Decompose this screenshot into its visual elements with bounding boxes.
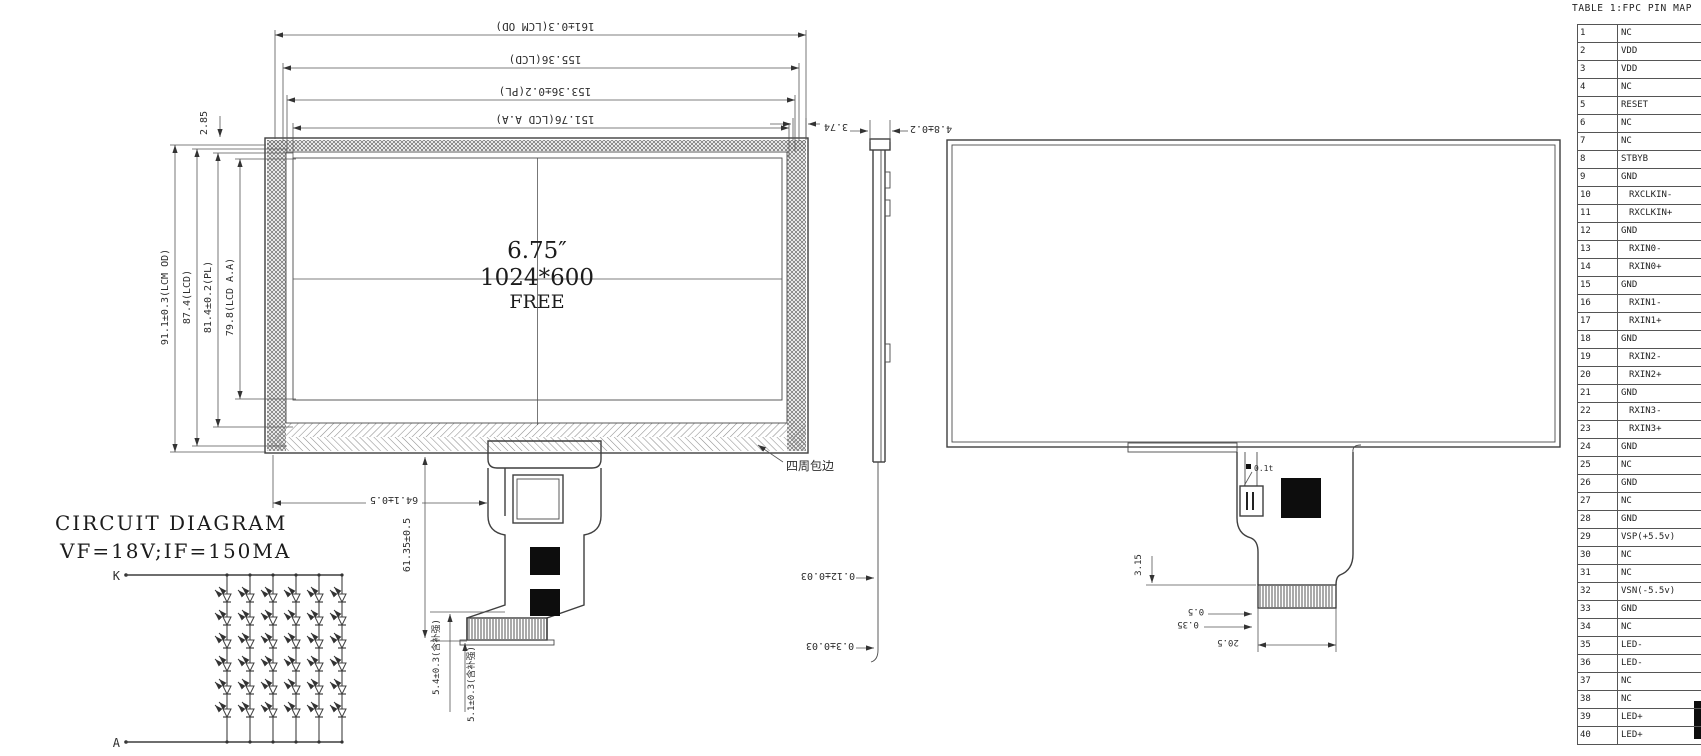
dim-lcm-od-height: 91.1±0.3(LCM OD) [160, 249, 171, 345]
pin-number: 39 [1578, 709, 1618, 726]
panel-resolution-text: 1024*600 [480, 265, 594, 291]
ic-thickness-label: 0.1t [1254, 464, 1273, 473]
pin-signal-name: RESET [1618, 97, 1701, 114]
pin-number: 11 [1578, 205, 1618, 222]
dim-finger-pitch-2: 0.35 [1177, 619, 1199, 629]
pin-row: 32VSN(-5.5v) [1577, 583, 1701, 601]
front-frame-hatch-right [787, 140, 806, 451]
dim-tail-offset-x: 64.1±0.5 [370, 494, 418, 505]
dim-top-gap: 2.85 [199, 111, 210, 135]
pin-signal-name: NC [1618, 691, 1701, 708]
tail-pad-1 [530, 547, 560, 575]
front-view: 6.75″ 1024*600 FREE 161±0.3(LCM OD) 155.… [160, 20, 834, 722]
pin-row: 2VDD [1577, 43, 1701, 61]
pin-row: 38NC [1577, 691, 1701, 709]
pin-number: 10 [1578, 187, 1618, 204]
pin-signal-name: GND [1618, 475, 1701, 492]
pin-signal-name: NC [1618, 565, 1701, 582]
ic-label-marker [1246, 464, 1251, 469]
side-top-cap [870, 139, 890, 150]
pin-signal-name: RXIN2- [1618, 349, 1701, 366]
pin-number: 37 [1578, 673, 1618, 690]
pin-row: 18GND [1577, 331, 1701, 349]
pin-signal-name: LED- [1618, 655, 1701, 672]
dim-connector-width: 20.5 [1217, 637, 1239, 647]
pin-number: 17 [1578, 313, 1618, 330]
led-array [215, 573, 346, 743]
pin-number: 21 [1578, 385, 1618, 402]
pin-signal-name: NC [1618, 457, 1701, 474]
tail-pad-2 [530, 589, 560, 616]
pin-row: 31NC [1577, 565, 1701, 583]
pin-signal-name: NC [1618, 547, 1701, 564]
pin-number: 30 [1578, 547, 1618, 564]
pin-number: 35 [1578, 637, 1618, 654]
pin-row: 14RXIN0+ [1577, 259, 1701, 277]
pin-row: 22RXIN3- [1577, 403, 1701, 421]
pin-row: 23RXIN3+ [1577, 421, 1701, 439]
pin-signal-name: VDD [1618, 61, 1701, 78]
circuit-title: CIRCUIT DIAGRAM [55, 511, 287, 535]
pin-row: 7NC [1577, 133, 1701, 151]
pin-signal-name: NC [1618, 79, 1701, 96]
technical-drawing: 6.75″ 1024*600 FREE 161±0.3(LCM OD) 155.… [0, 0, 1701, 756]
pin-number: 28 [1578, 511, 1618, 528]
dim-side-layer-1: 0.12±0.03 [801, 570, 855, 581]
pin-row: 12GND [1577, 223, 1701, 241]
pin-number: 13 [1578, 241, 1618, 258]
panel-brand-text: FREE [509, 291, 564, 313]
edge-wrap-label: 四周包边 [786, 459, 834, 473]
pin-number: 29 [1578, 529, 1618, 546]
pin-signal-name: NC [1618, 25, 1701, 42]
pin-number: 18 [1578, 331, 1618, 348]
pin-number: 19 [1578, 349, 1618, 366]
pin-row: 29VSP(+5.5v) [1577, 529, 1701, 547]
pin-number: 31 [1578, 565, 1618, 582]
dim-aa-height: 79.8(LCD A.A) [225, 258, 236, 336]
pin-signal-name: RXIN3- [1618, 403, 1701, 420]
pin-row: 10RXCLKIN- [1577, 187, 1701, 205]
rear-tail-right-edge [1336, 452, 1353, 585]
pin-map-title: TABLE 1:FPC PIN MAP [1572, 3, 1692, 14]
pin-signal-name: RXIN1+ [1618, 313, 1701, 330]
pin-number: 27 [1578, 493, 1618, 510]
pin-signal-name: GND [1618, 385, 1701, 402]
pin-row: 35LED- [1577, 637, 1701, 655]
pin-number: 16 [1578, 295, 1618, 312]
front-frame-hatch-bottom1 [267, 423, 806, 437]
pin-signal-name: RXIN1- [1618, 295, 1701, 312]
rear-ic-pad [1281, 478, 1321, 518]
pin-number: 33 [1578, 601, 1618, 618]
pin-signal-name: RXIN0- [1618, 241, 1701, 258]
dim-comb-height: 3.15 [1134, 554, 1144, 576]
pin-signal-name: RXIN2+ [1618, 367, 1701, 384]
side-tab-3 [885, 344, 890, 362]
cathode-label: K [113, 569, 121, 583]
tail-ic-area [513, 475, 563, 523]
front-fpc-tail [460, 441, 601, 645]
pin-row: 3VDD [1577, 61, 1701, 79]
dim-lcd-height: 87.4(LCD) [182, 270, 193, 324]
pin-signal-name: GND [1618, 601, 1701, 618]
pin-row: 37NC [1577, 673, 1701, 691]
pin-row: 36LED- [1577, 655, 1701, 673]
pin-row: 1NC [1577, 25, 1701, 43]
pin-row: 33GND [1577, 601, 1701, 619]
pin-number: 8 [1578, 151, 1618, 168]
rear-view: 0.1t 3.15 0.5 0.35 20.5 [947, 140, 1560, 652]
pin-number: 23 [1578, 421, 1618, 438]
pin-row: 16RXIN1- [1577, 295, 1701, 313]
pin-number: 12 [1578, 223, 1618, 240]
pin-number: 20 [1578, 367, 1618, 384]
panel-size-text: 6.75″ [507, 238, 567, 264]
pin-row: 24GND [1577, 439, 1701, 457]
dim-pl-width: 153.36±0.2(PL) [499, 85, 592, 98]
pin-signal-name: NC [1618, 619, 1701, 636]
pin-number: 2 [1578, 43, 1618, 60]
front-frame-hatch-left [267, 140, 286, 451]
pin-signal-name: VSN(-5.5v) [1618, 583, 1701, 600]
pin-number: 24 [1578, 439, 1618, 456]
rear-connector-fingers [1260, 586, 1332, 607]
tail-ic-inner [517, 479, 559, 519]
pin-signal-name: NC [1618, 133, 1701, 150]
rear-dimensions: 3.15 0.5 0.35 20.5 [1134, 554, 1336, 652]
pin-row: 15GND [1577, 277, 1701, 295]
side-tab-2 [885, 200, 890, 216]
pin-row: 9GND [1577, 169, 1701, 187]
fpc-pin-map-table: 1NC2VDD3VDD4NC5RESET6NC7NC8STBYB9GND10RX… [1577, 24, 1701, 748]
pin-row: 4NC [1577, 79, 1701, 97]
pin-signal-name: NC [1618, 673, 1701, 690]
rear-connector [1240, 486, 1263, 516]
pin-row: 11RXCLKIN+ [1577, 205, 1701, 223]
tail-connector-base [460, 640, 554, 645]
pin-row: 8STBYB [1577, 151, 1701, 169]
pin-row: 17RXIN1+ [1577, 313, 1701, 331]
pin-number: 32 [1578, 583, 1618, 600]
pin-number: 38 [1578, 691, 1618, 708]
rear-inner-outline [952, 145, 1555, 442]
pin-number: 5 [1578, 97, 1618, 114]
pin-row: 34NC [1577, 619, 1701, 637]
pin-signal-name: GND [1618, 439, 1701, 456]
dim-side-layer-2: 0.3±0.03 [806, 640, 854, 651]
pin-signal-name: GND [1618, 277, 1701, 294]
pin-row: 28GND [1577, 511, 1701, 529]
dim-pl-height: 81.4±0.2(PL) [203, 261, 214, 333]
front-tail-dimensions: 64.1±0.5 61.35±0.5 5.4±0.3(含补强) 5.1±0.3(… [273, 455, 505, 722]
pin-row: 40LED+ [1577, 727, 1701, 745]
pin-number: 26 [1578, 475, 1618, 492]
circuit-diagram: CIRCUIT DIAGRAM VF=18V;IF=150MA K A [55, 511, 346, 750]
front-frame-hatch-top [267, 140, 806, 151]
dim-finger-pitch-1: 0.5 [1188, 606, 1204, 616]
front-frame-hatch-bottom2 [267, 437, 806, 451]
pin-number: 7 [1578, 133, 1618, 150]
dim-lcd-width: 155.36(LCD) [509, 53, 582, 66]
pin-number: 22 [1578, 403, 1618, 420]
pin-number: 14 [1578, 259, 1618, 276]
dim-side-thickness: 4.8±0.2 [910, 123, 952, 134]
pin-signal-name: GND [1618, 331, 1701, 348]
dim-tail-thickness-1: 5.4±0.3(含补强) [430, 619, 442, 695]
pin-number: 3 [1578, 61, 1618, 78]
dim-aa-width: 151.76(LCD A.A) [495, 113, 594, 126]
pin-row: 25NC [1577, 457, 1701, 475]
pin-signal-name: LED+ [1618, 727, 1701, 744]
pin-row: 27NC [1577, 493, 1701, 511]
pin-signal-name: RXCLKIN+ [1618, 205, 1701, 222]
pin-number: 34 [1578, 619, 1618, 636]
pin-signal-name: NC [1618, 493, 1701, 510]
pin-signal-name: GND [1618, 169, 1701, 186]
side-tab-1 [885, 172, 890, 188]
pin-row: 5RESET [1577, 97, 1701, 115]
pin-signal-name: RXIN3+ [1618, 421, 1701, 438]
pin-number: 4 [1578, 79, 1618, 96]
anode-label: A [113, 736, 121, 750]
pin-number: 15 [1578, 277, 1618, 294]
pin-signal-name: LED+ [1618, 709, 1701, 726]
pin-signal-name: NC [1618, 115, 1701, 132]
pin-row: 13RXIN0- [1577, 241, 1701, 259]
pin-row: 21GND [1577, 385, 1701, 403]
dim-tail-length: 61.35±0.5 [402, 518, 413, 572]
pin-row: 30NC [1577, 547, 1701, 565]
dim-tail-thickness-2: 5.1±0.3(含补强) [465, 646, 477, 722]
pin-row: 6NC [1577, 115, 1701, 133]
pin-row: 20RXIN2+ [1577, 367, 1701, 385]
pin-signal-name: RXIN0+ [1618, 259, 1701, 276]
pin-number: 36 [1578, 655, 1618, 672]
pin-number: 6 [1578, 115, 1618, 132]
tail-connector-fingers [469, 619, 544, 639]
side-fpc-profile [871, 462, 878, 662]
circuit-subtitle: VF=18V;IF=150MA [59, 539, 291, 563]
pin-signal-name: VDD [1618, 43, 1701, 60]
pin-number: 1 [1578, 25, 1618, 42]
dim-side-step: 3.74 [824, 121, 848, 132]
rear-outline [947, 140, 1560, 447]
lcd-module-drawing-sheet: { "front_view": { "center": { "size": "6… [0, 0, 1701, 756]
dim-lcm-od-width: 161±0.3(LCM OD) [495, 20, 594, 33]
pin-signal-name: RXCLKIN- [1618, 187, 1701, 204]
pin-signal-name: GND [1618, 511, 1701, 528]
pin-row: 19RXIN2- [1577, 349, 1701, 367]
pin-row: 26GND [1577, 475, 1701, 493]
pin-number: 25 [1578, 457, 1618, 474]
pin-number: 40 [1578, 727, 1618, 744]
pin-signal-name: VSP(+5.5v) [1618, 529, 1701, 546]
rear-ic-callout: 0.1t [1244, 464, 1273, 486]
pin-signal-name: GND [1618, 223, 1701, 240]
pin-signal-name: LED- [1618, 637, 1701, 654]
pin-row: 39LED+ [1577, 709, 1701, 727]
pin-number: 9 [1578, 169, 1618, 186]
pin-signal-name: STBYB [1618, 151, 1701, 168]
